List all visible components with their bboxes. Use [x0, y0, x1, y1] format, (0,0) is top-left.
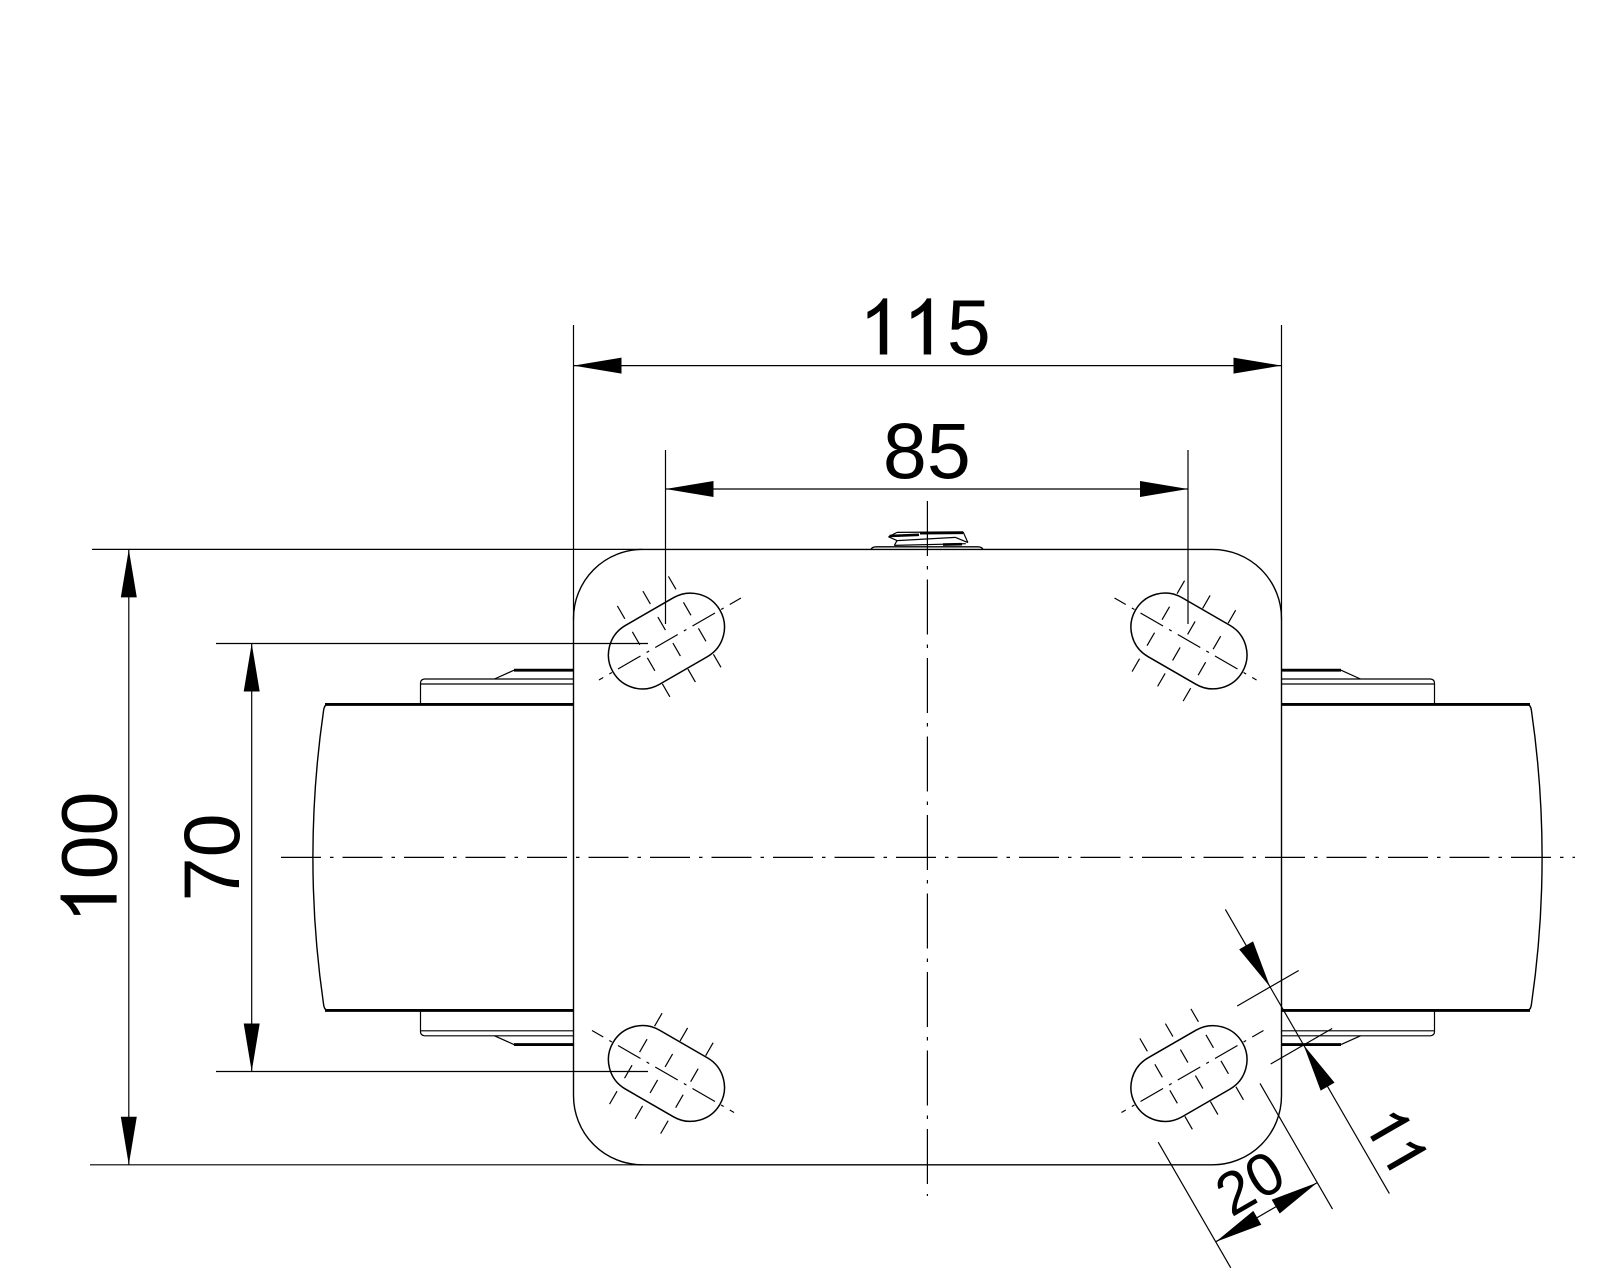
svg-text:0: 0	[45, 792, 134, 836]
svg-text:5: 5	[927, 406, 971, 495]
svg-text:7: 7	[167, 857, 256, 901]
svg-text:5: 5	[947, 283, 991, 372]
svg-text:0: 0	[167, 813, 256, 857]
svg-text:0: 0	[45, 835, 134, 879]
svg-text:8: 8	[883, 406, 927, 495]
